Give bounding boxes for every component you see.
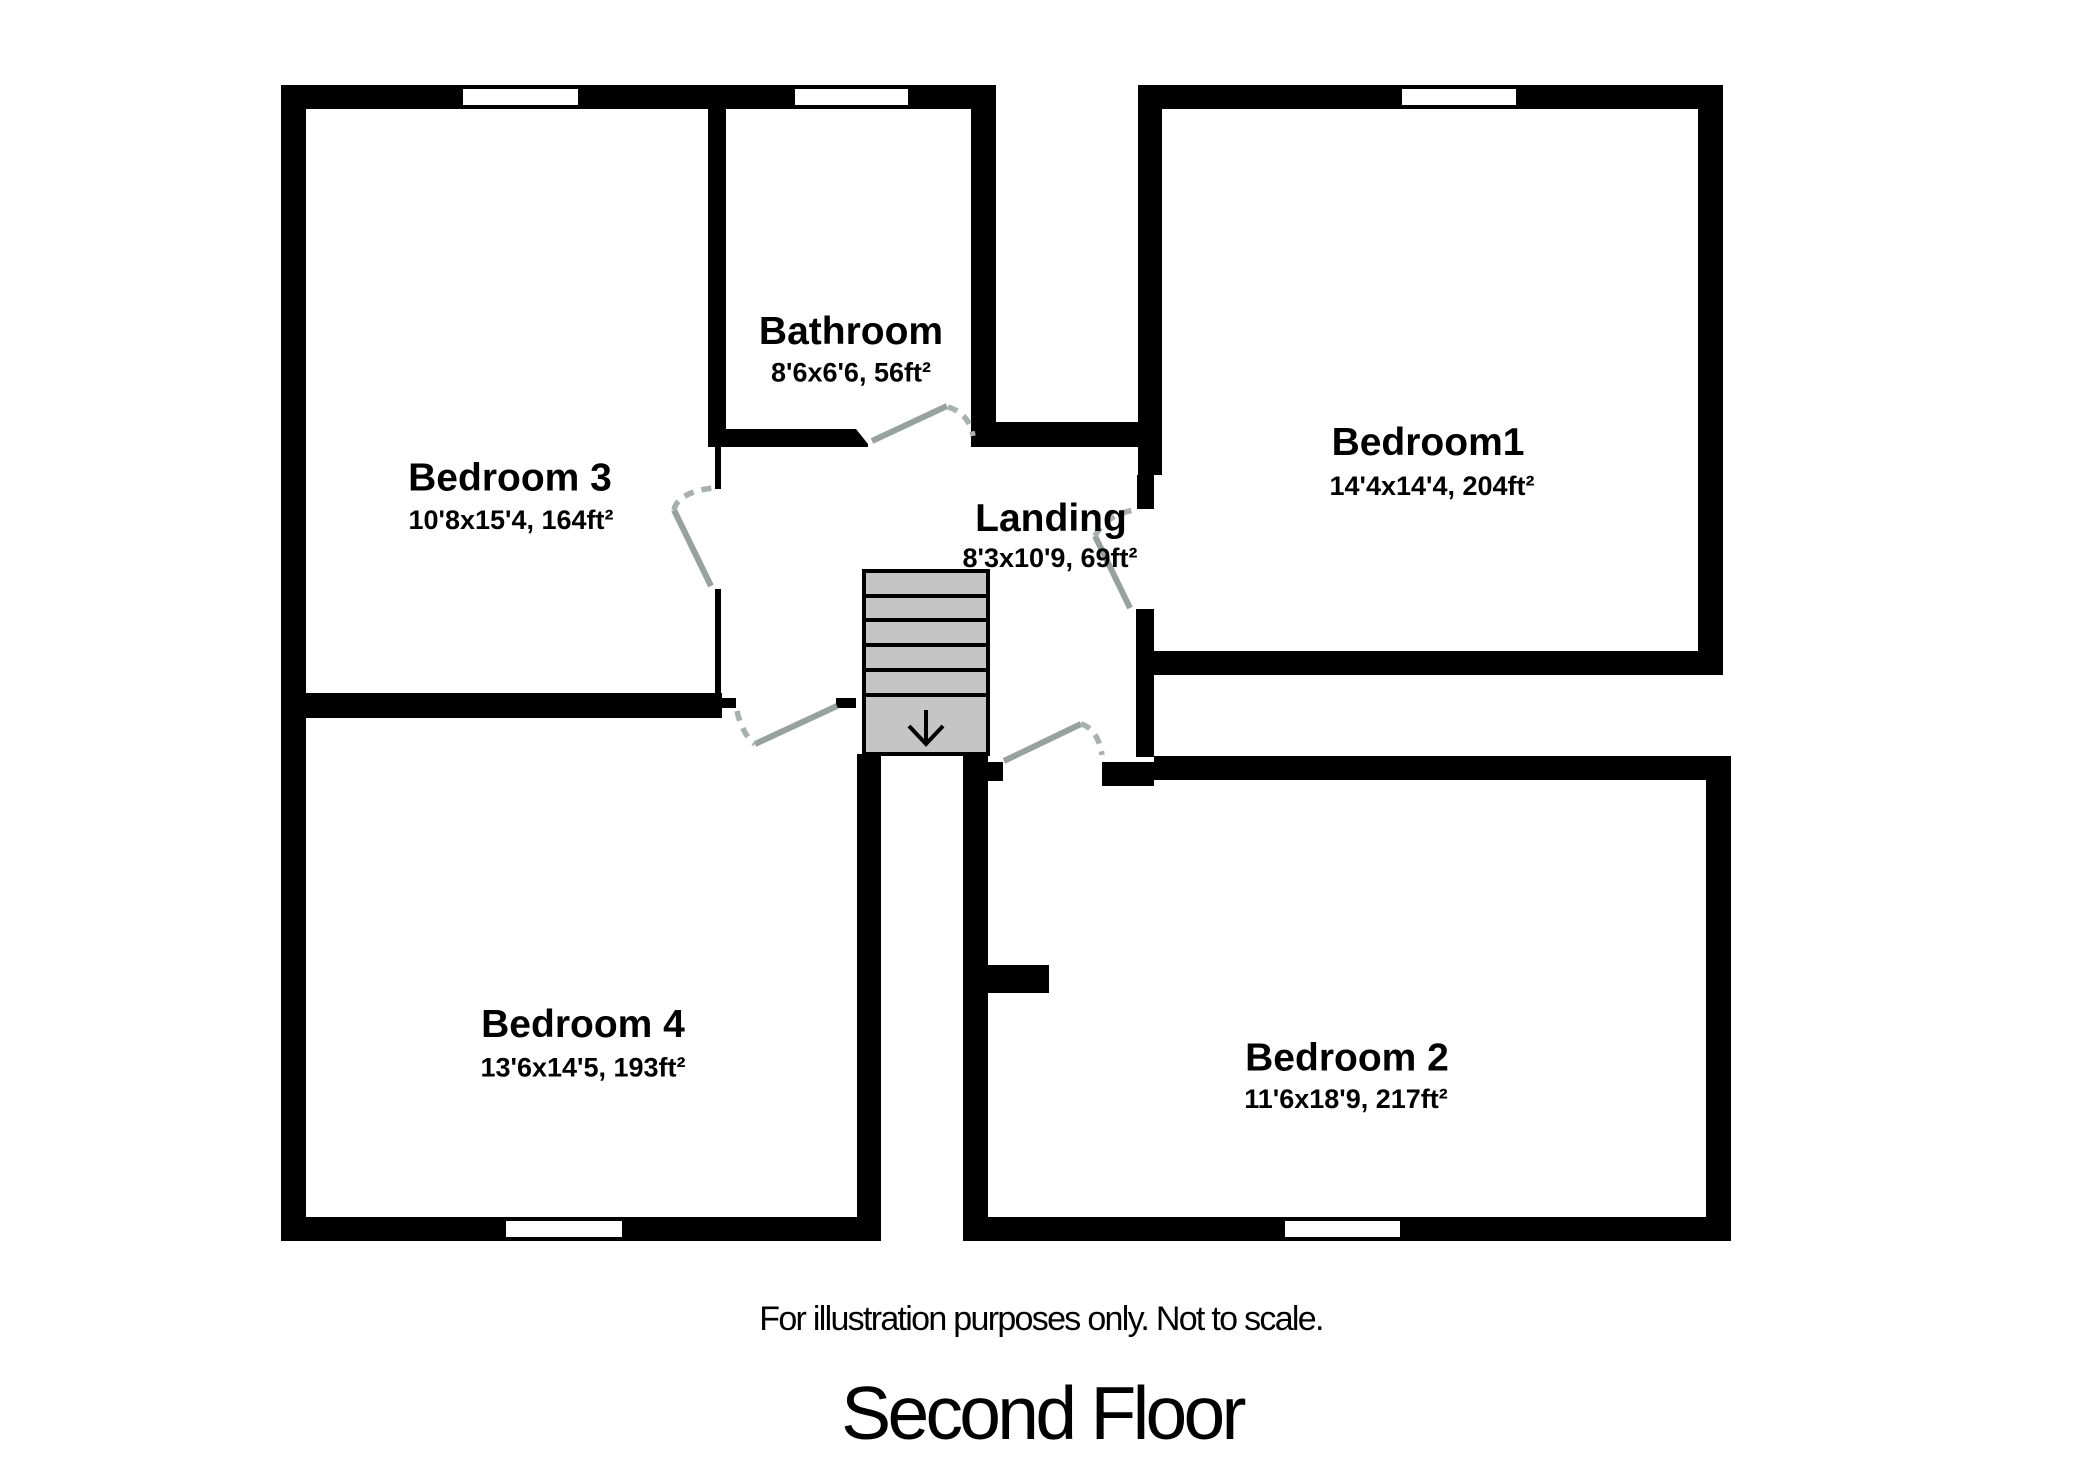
svg-text:Bedroom1: Bedroom1 <box>1332 421 1525 464</box>
svg-text:8'3x10'9, 69ft²: 8'3x10'9, 69ft² <box>963 543 1138 573</box>
svg-text:Landing: Landing <box>975 497 1127 540</box>
svg-text:Bedroom 3: Bedroom 3 <box>408 457 612 500</box>
svg-text:Second Floor: Second Floor <box>841 1371 1245 1455</box>
svg-text:13'6x14'5, 193ft²: 13'6x14'5, 193ft² <box>481 1053 686 1083</box>
svg-text:Bathroom: Bathroom <box>759 310 943 353</box>
svg-text:14'4x14'4, 204ft²: 14'4x14'4, 204ft² <box>1330 471 1535 501</box>
svg-text:11'6x18'9, 217ft²: 11'6x18'9, 217ft² <box>1244 1084 1448 1114</box>
svg-text:8'6x6'6, 56ft²: 8'6x6'6, 56ft² <box>771 358 931 388</box>
svg-text:Bedroom 2: Bedroom 2 <box>1245 1037 1449 1080</box>
svg-text:Bedroom 4: Bedroom 4 <box>481 1003 685 1046</box>
svg-text:For illustration purposes only: For illustration purposes only. Not to s… <box>759 1300 1323 1338</box>
svg-text:10'8x15'4, 164ft²: 10'8x15'4, 164ft² <box>409 505 614 535</box>
